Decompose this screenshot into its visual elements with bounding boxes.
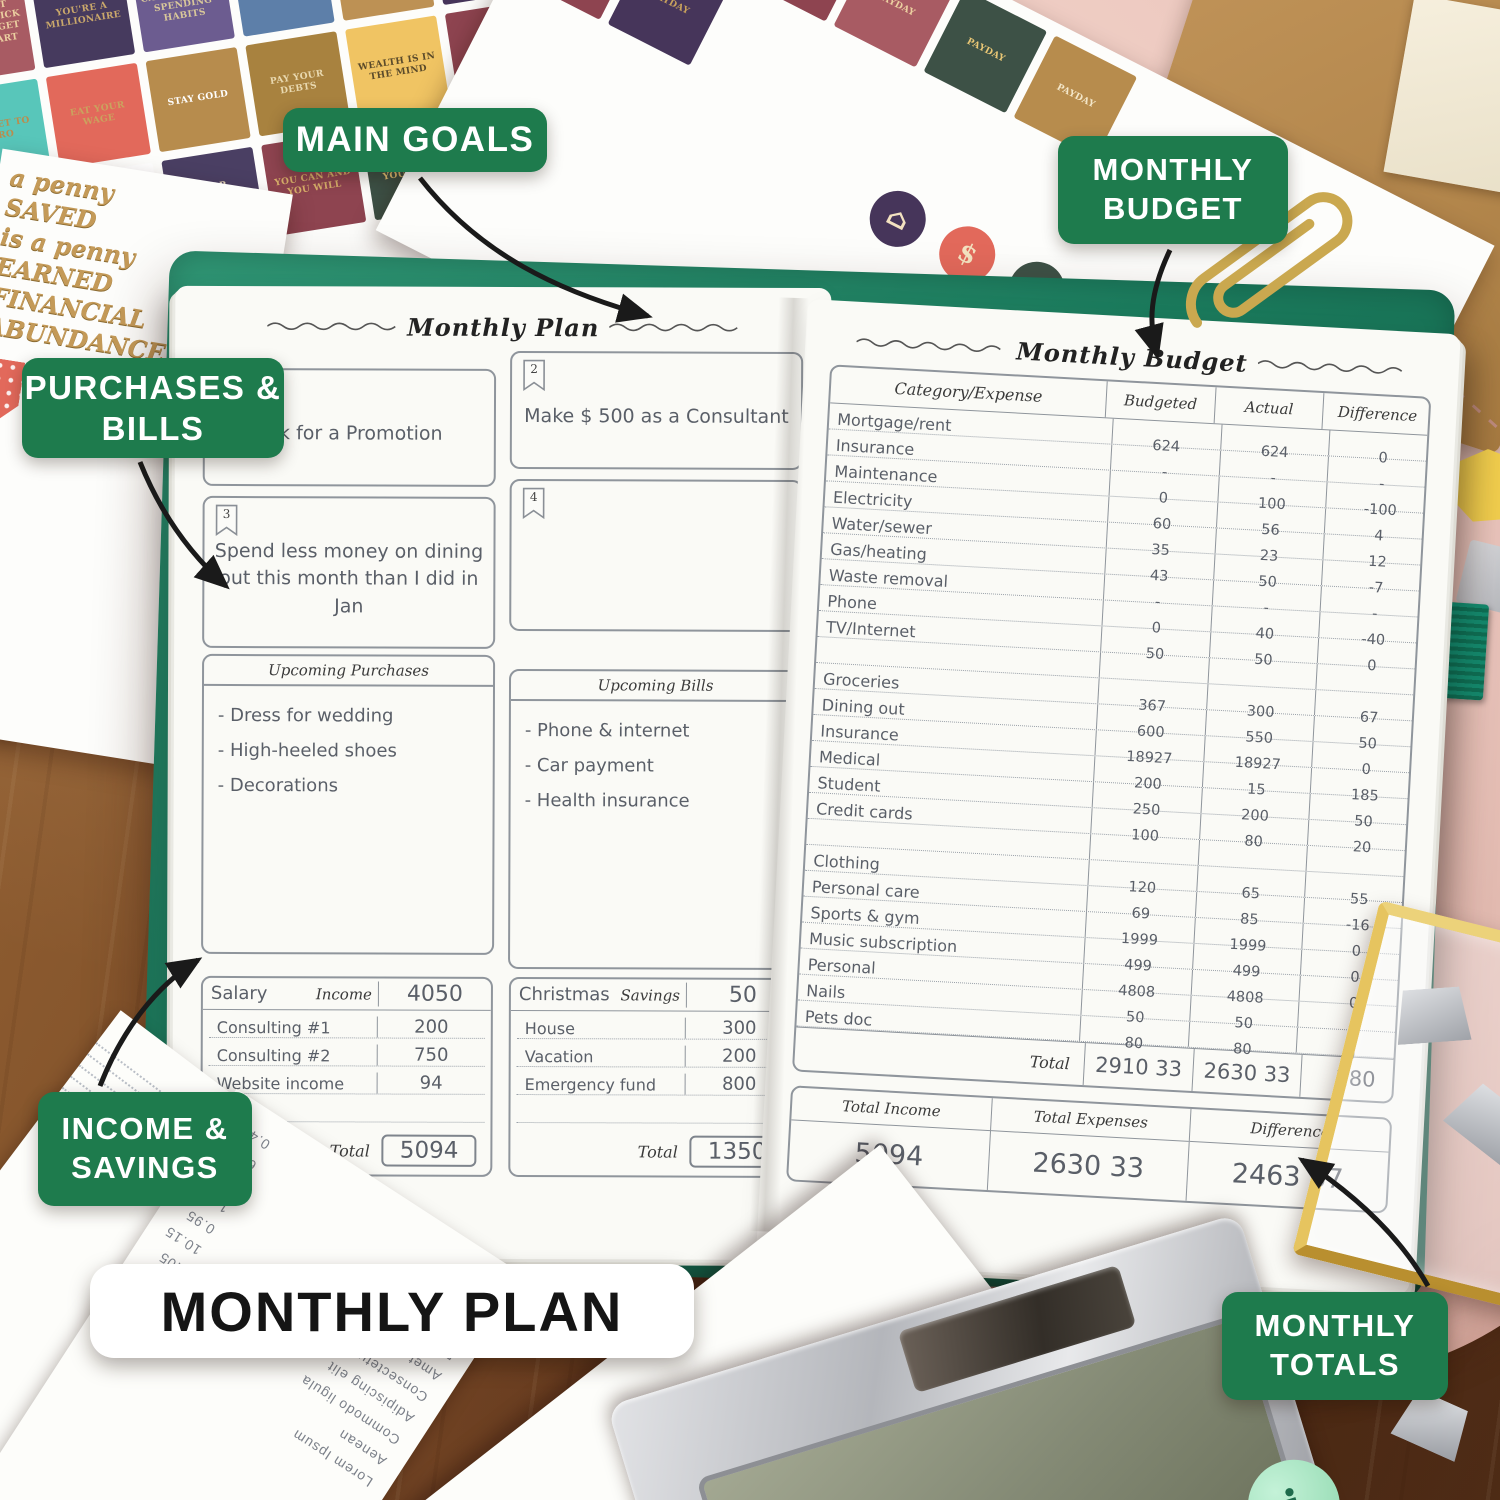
- upcoming-purchases-box: Upcoming Purchases - Dress for wedding- …: [201, 654, 495, 955]
- bill-item: - Car payment: [525, 748, 786, 784]
- income-amount: 200: [377, 1017, 485, 1038]
- goal-number: 4: [522, 490, 546, 504]
- income-title: Income: [316, 985, 378, 1003]
- savings-row: [516, 1095, 792, 1124]
- label-monthly-totals: MONTHLY TOTALS: [1222, 1292, 1448, 1400]
- wavy-line: [609, 321, 739, 333]
- label-main-goals: MAIN GOALS: [283, 108, 547, 172]
- goal-number: 2: [522, 362, 546, 376]
- income-row: Website income 94: [209, 1066, 485, 1095]
- income-first-label: Salary: [211, 983, 268, 1004]
- label-purchases-bills: PURCHASES & BILLS: [22, 358, 284, 458]
- budget-total-label: Total: [795, 1039, 1085, 1074]
- savings-goal: Emergency fund: [517, 1075, 685, 1095]
- savings-title: Savings: [620, 986, 686, 1004]
- open-budget-planner: Monthly Plan 1 Ask for a Promotion: [155, 263, 1425, 1273]
- upcoming-bills-box: Upcoming Bills - Phone & internet- Car p…: [508, 669, 802, 970]
- budget-table: Category/Expense Budgeted Actual Differe…: [792, 364, 1431, 1104]
- purchases-bills-section: Upcoming Purchases - Dress for wedding- …: [201, 654, 802, 956]
- main-goals-grid: 1 Ask for a Promotion 2 Make $ 500 as a …: [202, 350, 803, 632]
- column-category: Category/Expense: [831, 375, 1107, 409]
- sticker-tile: never spend your money: [229, 0, 334, 37]
- savings-goal: House: [517, 1019, 685, 1039]
- payday-sticker-tile: PAYDAY: [608, 0, 732, 66]
- column-difference: Difference: [1322, 393, 1432, 435]
- income-source: Consulting #1: [209, 1018, 377, 1038]
- purchase-item: - High-heeled shoes: [218, 733, 479, 769]
- income-row: Consulting #2 750: [209, 1038, 485, 1067]
- wavy-line: [856, 336, 1006, 356]
- label-monthly-plan: MONTHLY PLAN: [90, 1264, 694, 1358]
- purchase-item: - Decorations: [218, 768, 479, 804]
- total-expenses-value: 2630 33: [987, 1131, 1189, 1201]
- savings-row: Emergency fund 800: [517, 1067, 793, 1096]
- binder-clip: [1394, 986, 1472, 1045]
- label-monthly-budget: MONTHLY BUDGET: [1058, 136, 1288, 244]
- income-header-row: Salary Income 4050: [203, 978, 491, 1011]
- income-amount: 750: [377, 1045, 485, 1066]
- goal-text: Spend less money on dining out this mont…: [214, 538, 483, 622]
- bill-item: - Phone & internet: [525, 713, 786, 749]
- income-source: Consulting #2: [209, 1046, 377, 1066]
- goal-box: 2 Make $ 500 as a Consultant: [510, 351, 803, 470]
- page-title: Monthly Plan: [407, 312, 599, 342]
- product-photo-budget-planner: the BEST WAY to stick to A BUDGET is to …: [0, 0, 1500, 1500]
- income-first-value: 4050: [378, 982, 491, 1007]
- round-sticker-icon: ⌂: [860, 181, 935, 256]
- sticker-tile: the BEST WAY to stick to A BUDGET is to …: [0, 0, 35, 84]
- binder-clip: [1443, 1078, 1500, 1166]
- income-row: Consulting #1 200: [209, 1010, 485, 1039]
- goal-box: 3 Spend less money on dining out this mo…: [202, 496, 496, 649]
- label-income-savings: INCOME & SAVINGS: [38, 1092, 252, 1206]
- goal-box: 4: [509, 479, 803, 632]
- savings-row: Vacation 200: [517, 1039, 793, 1068]
- sticker-tile: eat your WAGE: [46, 63, 151, 168]
- savings-goal: [516, 1122, 684, 1123]
- savings-goal: Vacation: [517, 1047, 685, 1067]
- goal-text: Ask for a Promotion: [256, 420, 443, 448]
- wavy-line: [1257, 357, 1407, 377]
- sticker-tile: stay GOLD: [146, 47, 251, 152]
- purchase-item: - Dress for wedding: [218, 698, 479, 734]
- bill-item: - Health insurance: [525, 783, 786, 819]
- upcoming-purchases-title: Upcoming Purchases: [204, 656, 493, 687]
- income-amount: 94: [377, 1073, 485, 1094]
- savings-row: House 300: [517, 1011, 793, 1040]
- goal-number: 3: [215, 507, 239, 521]
- total-expenses-column: Total Expenses 2630 33: [986, 1098, 1190, 1201]
- sticker-tile: you're a millionaire: [30, 0, 135, 68]
- income-total-value: 5094: [382, 1135, 477, 1167]
- savings-first-label: Christmas: [519, 984, 610, 1005]
- goal-text: Make $ 500 as a Consultant: [524, 403, 789, 431]
- column-budgeted: Budgeted: [1105, 381, 1215, 423]
- monthly-plan-header: Monthly Plan: [203, 308, 803, 346]
- savings-total-label: Total: [638, 1142, 678, 1161]
- upcoming-bills-title: Upcoming Bills: [511, 671, 800, 702]
- sticker-tile: more money can't fix BAD SPENDING HABITS: [130, 0, 235, 52]
- sticker-tile: wealth is in THE MIND: [345, 15, 450, 120]
- wavy-line: [267, 320, 397, 332]
- column-actual: Actual: [1213, 387, 1323, 429]
